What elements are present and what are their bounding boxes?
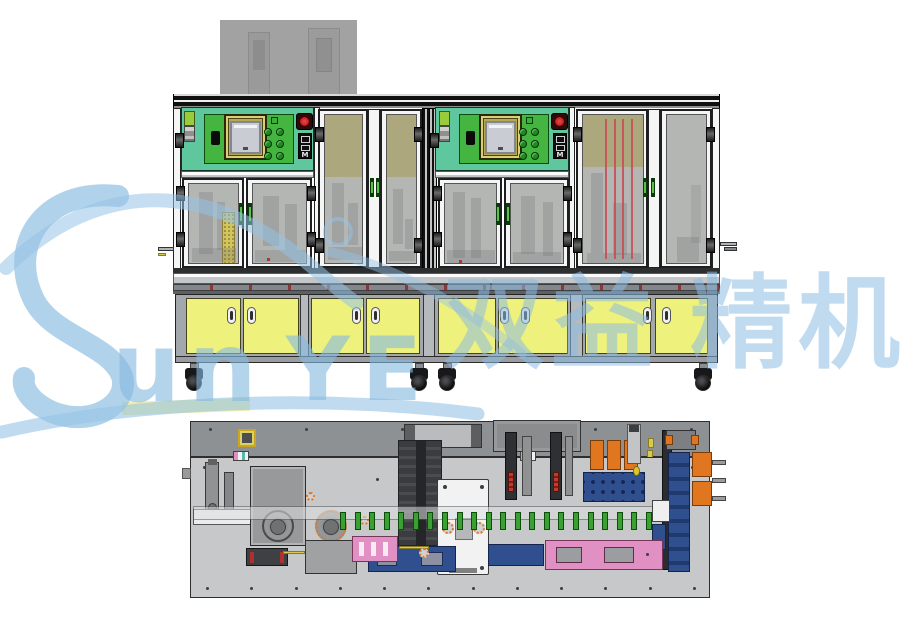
red-hose	[605, 119, 607, 259]
hmi-screen-titlebar	[234, 125, 257, 128]
gripper-pin	[631, 512, 637, 530]
front-view: M	[0, 0, 900, 400]
door-glass	[510, 183, 564, 264]
gripper-pin	[384, 512, 390, 530]
door-glass	[324, 114, 363, 264]
panel-button[interactable]	[264, 140, 272, 148]
glass-door[interactable]	[318, 109, 368, 268]
glass-door[interactable]	[576, 109, 648, 268]
caster	[183, 363, 207, 393]
gripper-pin	[355, 512, 361, 530]
gripper-pin	[602, 512, 608, 530]
cabinet-door[interactable]	[655, 298, 708, 354]
gripper-pin	[457, 512, 463, 530]
gripper-pin	[427, 512, 433, 530]
screw	[206, 587, 209, 590]
gripper-pin	[486, 512, 492, 530]
panel-hinge	[175, 133, 184, 148]
door-hinge	[706, 238, 715, 253]
door-handle[interactable]	[239, 203, 243, 225]
clamp-cluster	[246, 548, 288, 566]
cabinet-post	[300, 294, 309, 358]
gripper-pin	[558, 512, 564, 530]
machinery-silhouette	[513, 252, 561, 263]
switch-glyph	[301, 136, 310, 143]
panel-button[interactable]	[276, 128, 284, 136]
panel-button[interactable]	[519, 140, 527, 148]
screw	[305, 428, 308, 431]
door-glass	[666, 114, 707, 264]
glass-tint	[325, 115, 362, 177]
door-hinge	[414, 238, 423, 253]
bench-rail-lower	[173, 284, 720, 291]
red-hose	[631, 119, 633, 259]
door-hinge	[563, 232, 572, 247]
clamp	[590, 440, 604, 470]
machinery-silhouette	[447, 250, 495, 263]
door-hinge	[573, 238, 582, 253]
cross-unit	[666, 430, 696, 450]
machinery-silhouette	[453, 192, 465, 258]
cabinet-post	[423, 294, 435, 358]
panel-button[interactable]	[264, 128, 272, 136]
switch-label: M	[299, 151, 311, 159]
valve-manifold	[583, 472, 645, 502]
white-block	[652, 500, 670, 522]
guide-strip	[283, 551, 305, 554]
top-view	[0, 410, 900, 636]
clamp	[607, 440, 621, 470]
panel-button[interactable]	[276, 152, 284, 160]
door-hinge	[176, 232, 185, 247]
cad-drawing-canvas: M	[0, 0, 900, 636]
machinery-silhouette	[471, 198, 481, 258]
tooling-plate	[305, 540, 357, 574]
bench-rail	[173, 273, 720, 284]
door-handle[interactable]	[370, 178, 374, 197]
emergency-stop-button[interactable]	[296, 113, 313, 130]
hmi-screen-mark	[243, 147, 248, 150]
gripper-pin	[413, 512, 419, 530]
cabinet-handle[interactable]	[352, 307, 361, 324]
indicator-lamp	[271, 117, 278, 124]
status-dot	[267, 258, 270, 261]
gripper-pin	[500, 512, 506, 530]
door-glass	[582, 114, 644, 264]
door-hinge	[307, 186, 316, 201]
gripper-pin	[340, 512, 346, 530]
caster	[436, 363, 460, 393]
screw	[693, 587, 696, 590]
machinery-silhouette	[263, 196, 279, 246]
door-handle[interactable]	[496, 203, 500, 225]
caster	[692, 363, 716, 393]
glass-door[interactable]	[182, 178, 244, 268]
stripe-fixture	[233, 451, 249, 461]
gripper-pin	[515, 512, 521, 530]
hmi-screen[interactable]	[485, 121, 516, 154]
hmi-screen[interactable]	[230, 121, 261, 154]
gripper-pin	[398, 512, 404, 530]
machinery-silhouette	[591, 173, 603, 253]
screw	[209, 428, 212, 431]
door-hinge	[433, 186, 442, 201]
cabinet-handle[interactable]	[227, 307, 236, 324]
panel-button[interactable]	[519, 128, 527, 136]
side-tab	[182, 468, 191, 479]
output-clamp	[692, 481, 712, 506]
machinery-silhouette	[348, 203, 358, 245]
bearing-ring	[306, 492, 315, 501]
screw	[649, 587, 652, 590]
screw	[472, 587, 475, 590]
hmi-screen-titlebar	[489, 125, 512, 128]
selector-switch-panel[interactable]: M	[553, 133, 567, 159]
gripper-pin	[442, 512, 448, 530]
gripper-pin-row	[340, 512, 652, 528]
panel-button[interactable]	[531, 152, 539, 160]
machinery-silhouette	[285, 204, 297, 250]
door-hinge	[315, 238, 324, 253]
machinery-silhouette	[691, 185, 701, 243]
plate-screws	[206, 586, 696, 590]
red-hose	[622, 119, 624, 259]
cabinet-bottom-rail	[175, 356, 718, 363]
enclosure-top-rail	[173, 94, 720, 108]
side-handle-right[interactable]	[720, 242, 737, 246]
output-pin	[712, 460, 726, 465]
machinery-silhouette	[332, 183, 344, 245]
machinery-silhouette	[405, 219, 413, 249]
side-handle-left[interactable]	[158, 247, 174, 251]
door-handle[interactable]	[248, 203, 252, 225]
signal-tower-base	[184, 126, 195, 142]
gripper-pin	[529, 512, 535, 530]
switch-label: M	[554, 151, 566, 159]
panel-button[interactable]	[531, 140, 539, 148]
cabinet-handle[interactable]	[521, 307, 530, 324]
panel-sill-rail	[181, 171, 314, 178]
index-rail	[668, 452, 690, 572]
machinery-silhouette	[543, 202, 553, 256]
status-dot	[459, 260, 462, 263]
screw	[295, 587, 298, 590]
shuttle-platform	[488, 544, 544, 566]
machinery-silhouette	[328, 247, 362, 260]
machinery-silhouette	[521, 196, 535, 254]
screw	[560, 587, 563, 590]
switch-glyph	[556, 136, 565, 143]
gripper-pin	[369, 512, 375, 530]
panel-button[interactable]	[519, 152, 527, 160]
door-hinge	[307, 232, 316, 247]
panel-sill-rail	[435, 171, 569, 178]
indicator-dot	[633, 466, 640, 476]
machinery-silhouette	[192, 248, 236, 262]
cabinet-door[interactable]	[585, 298, 651, 354]
cabinet-handle[interactable]	[247, 307, 256, 324]
hmi-screen-mark	[498, 147, 503, 150]
slide-red-segment	[508, 472, 514, 492]
gripper-pin	[646, 512, 652, 530]
screw	[250, 587, 253, 590]
screw	[427, 587, 430, 590]
machinery-silhouette	[389, 251, 415, 261]
sensor-tag	[648, 438, 654, 448]
cabinet-handle[interactable]	[662, 307, 671, 324]
gripper-pin	[617, 512, 623, 530]
glass-door[interactable]	[660, 109, 712, 268]
door-glass	[444, 183, 497, 264]
linear-rail-column	[398, 440, 442, 546]
signal-tower-light	[184, 111, 195, 126]
cabinet-door[interactable]	[498, 298, 568, 354]
hmi-cable-port	[211, 131, 220, 145]
door-hinge	[573, 127, 582, 142]
door-hinge	[706, 127, 715, 142]
glass-tint	[387, 115, 416, 177]
output-pin	[712, 478, 726, 483]
gripper-pin	[573, 512, 579, 530]
output-pin	[712, 496, 726, 501]
caster	[408, 363, 432, 393]
glass-door[interactable]	[246, 178, 312, 268]
red-hose	[614, 119, 616, 259]
cabinet-door[interactable]	[438, 298, 496, 354]
slide-red-segment	[553, 472, 559, 492]
door-handle[interactable]	[643, 178, 647, 197]
signal-tower-light	[439, 111, 450, 126]
door-hinge	[563, 186, 572, 201]
door-handle[interactable]	[651, 178, 655, 197]
door-glass	[188, 183, 239, 264]
hmi-button-grid[interactable]	[264, 128, 284, 158]
door-hinge	[176, 186, 185, 201]
slide-carriage	[522, 436, 532, 496]
guide-cylinder	[627, 424, 641, 464]
screw	[376, 478, 379, 481]
side-tag-left	[158, 253, 166, 256]
screw	[383, 587, 386, 590]
door-handle[interactable]	[506, 203, 510, 225]
gripper-pin	[588, 512, 594, 530]
hmi-button-grid[interactable]	[519, 128, 539, 158]
cabinet-post	[570, 294, 583, 358]
screw	[604, 587, 607, 590]
cabinet-handle[interactable]	[371, 307, 380, 324]
indicator-lamp	[526, 117, 533, 124]
red-hose-lines	[605, 119, 633, 259]
machinery-silhouette	[393, 189, 403, 244]
screw	[339, 587, 342, 590]
screw	[594, 428, 597, 431]
gripper-pin	[544, 512, 550, 530]
panel-button[interactable]	[264, 152, 272, 160]
corner-post	[422, 108, 430, 270]
machinery-silhouette	[199, 192, 213, 254]
door-glass	[386, 114, 417, 264]
side-handle-right-grip[interactable]	[724, 247, 737, 251]
output-clamp	[692, 452, 712, 477]
bearing-ring	[419, 548, 429, 558]
panel-hinge	[430, 133, 439, 148]
selector-switch-panel[interactable]: M	[298, 133, 312, 159]
screw	[516, 587, 519, 590]
glass-door[interactable]	[438, 178, 502, 268]
gripper-pin	[471, 512, 477, 530]
hmi-cable-port	[466, 131, 475, 145]
panel-button[interactable]	[531, 128, 539, 136]
transfer-table	[545, 540, 663, 570]
glass-door[interactable]	[504, 178, 569, 268]
emergency-stop-button[interactable]	[551, 113, 568, 130]
locating-bracket	[238, 429, 256, 447]
cabinet-handle[interactable]	[500, 307, 509, 324]
slide-carriage	[565, 436, 573, 496]
door-hinge	[414, 127, 423, 142]
cabinet-handle[interactable]	[643, 307, 652, 324]
door-hinge	[433, 232, 442, 247]
signal-tower-base	[439, 126, 450, 142]
door-glass	[252, 183, 307, 264]
machinery-silhouette	[255, 250, 305, 262]
door-hinge	[315, 127, 324, 142]
panel-button[interactable]	[276, 140, 284, 148]
transfer-table	[352, 536, 398, 562]
